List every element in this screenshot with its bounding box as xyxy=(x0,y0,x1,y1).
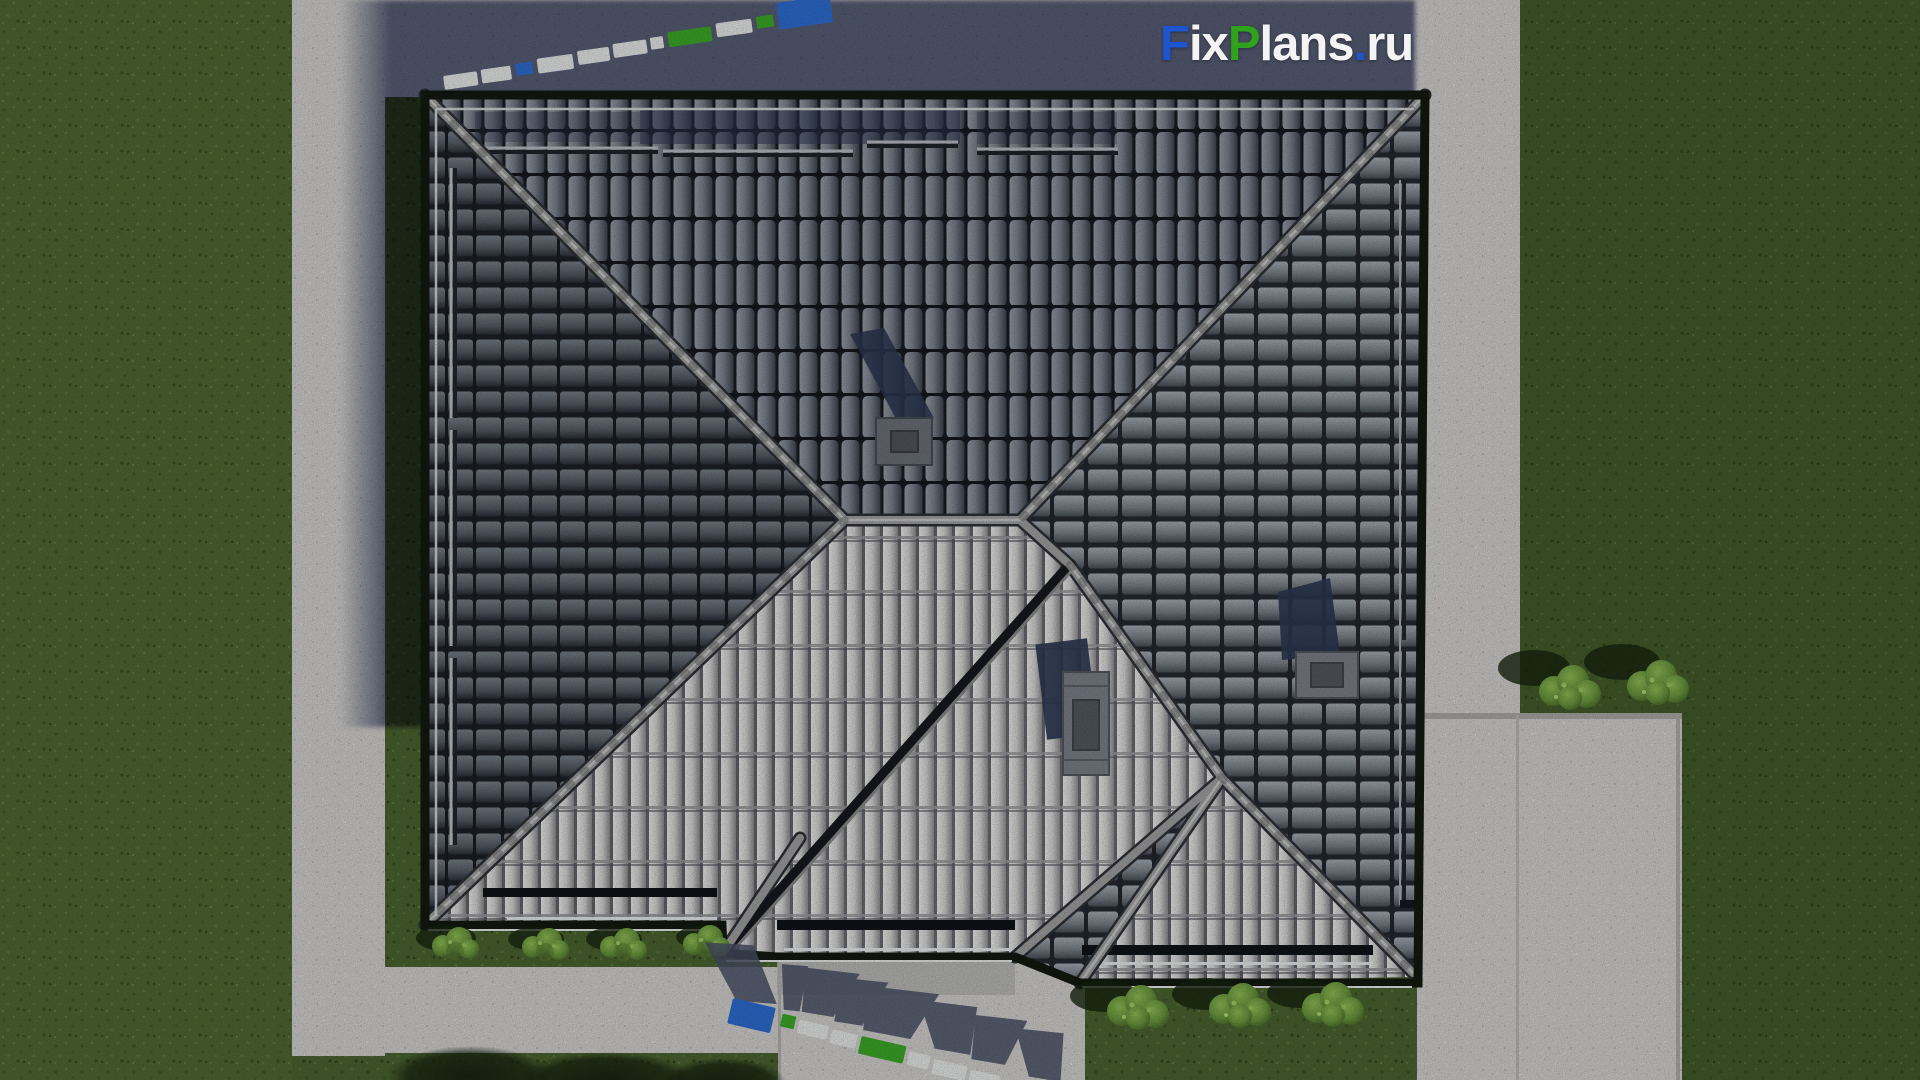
render-scene xyxy=(0,0,1920,1080)
watermark-segment: . xyxy=(1354,17,1367,71)
watermark-segment: ru xyxy=(1366,17,1413,71)
grain-overlay xyxy=(0,0,1920,1080)
watermark-segment: ix xyxy=(1189,17,1228,71)
watermark-segment: F xyxy=(1160,17,1189,71)
watermark-segment: lans xyxy=(1260,17,1354,71)
watermark-segment: P xyxy=(1228,17,1260,71)
watermark-text: FixPlans.ru xyxy=(1160,16,1413,72)
aerial-roof-render: FixPlans.ru xyxy=(0,0,1920,1080)
